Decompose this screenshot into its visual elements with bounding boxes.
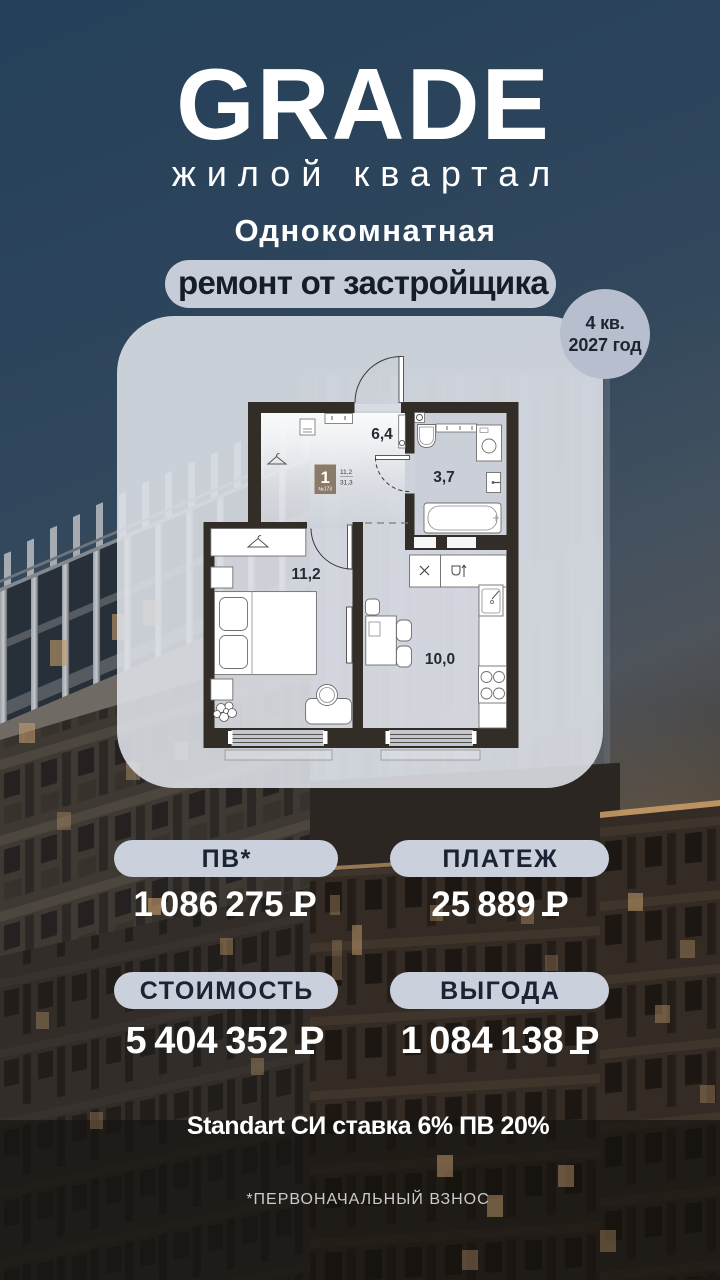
svg-text:1: 1 [320, 468, 329, 487]
svg-text:3,7: 3,7 [433, 469, 455, 486]
svg-text:11,2: 11,2 [291, 566, 320, 583]
svg-text:6,4: 6,4 [371, 426, 393, 443]
svg-text:10,0: 10,0 [425, 651, 455, 668]
svg-text:№173: №173 [318, 487, 332, 493]
svg-text:31,3: 31,3 [340, 480, 353, 487]
svg-text:11,2: 11,2 [340, 469, 353, 476]
